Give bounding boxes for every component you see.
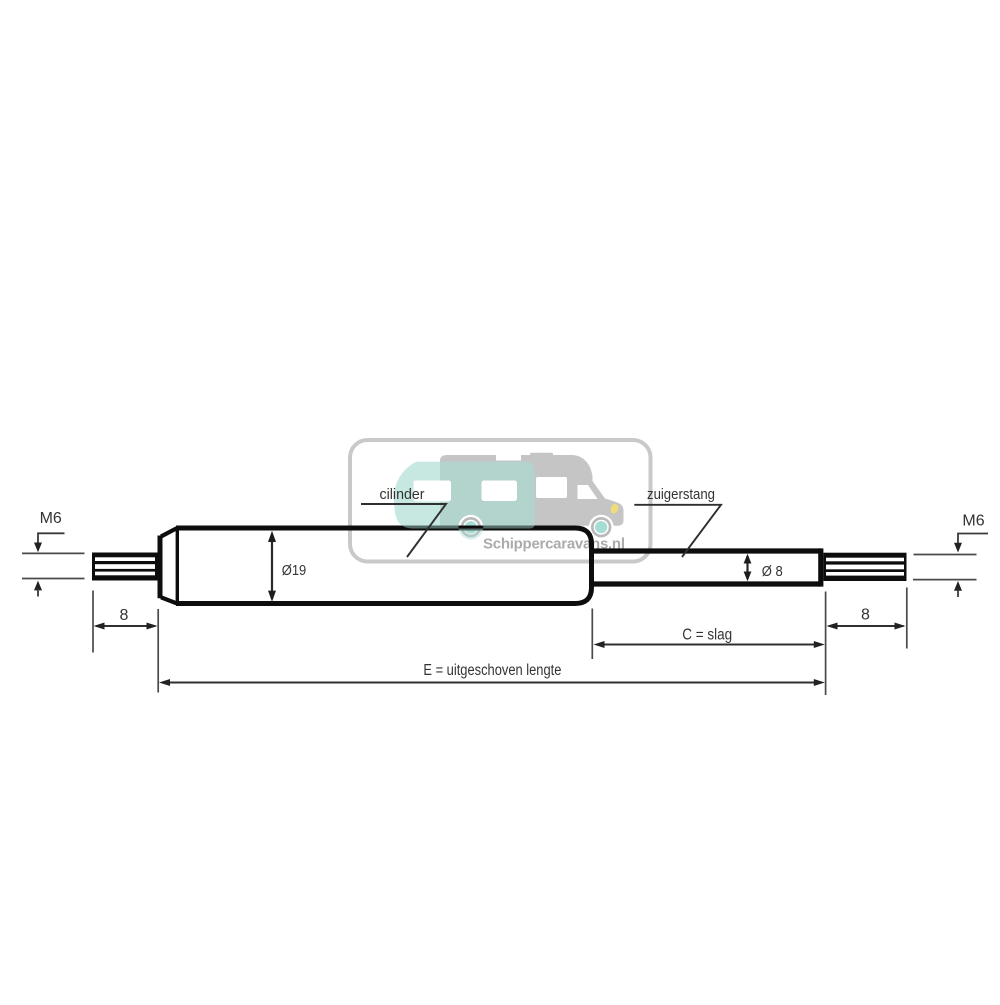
svg-text:8: 8: [120, 607, 129, 624]
svg-text:8: 8: [861, 607, 870, 624]
svg-text:zuigerstang: zuigerstang: [647, 486, 715, 503]
svg-text:M6: M6: [962, 513, 984, 530]
svg-text:M6: M6: [40, 510, 62, 527]
svg-text:C = slag: C = slag: [682, 627, 732, 644]
svg-text:Ø 8: Ø 8: [762, 563, 783, 580]
svg-text:cilinder: cilinder: [380, 486, 425, 503]
svg-text:Ø19: Ø19: [282, 562, 307, 579]
svg-text:E = uitgeschoven lengte: E = uitgeschoven lengte: [423, 662, 561, 679]
